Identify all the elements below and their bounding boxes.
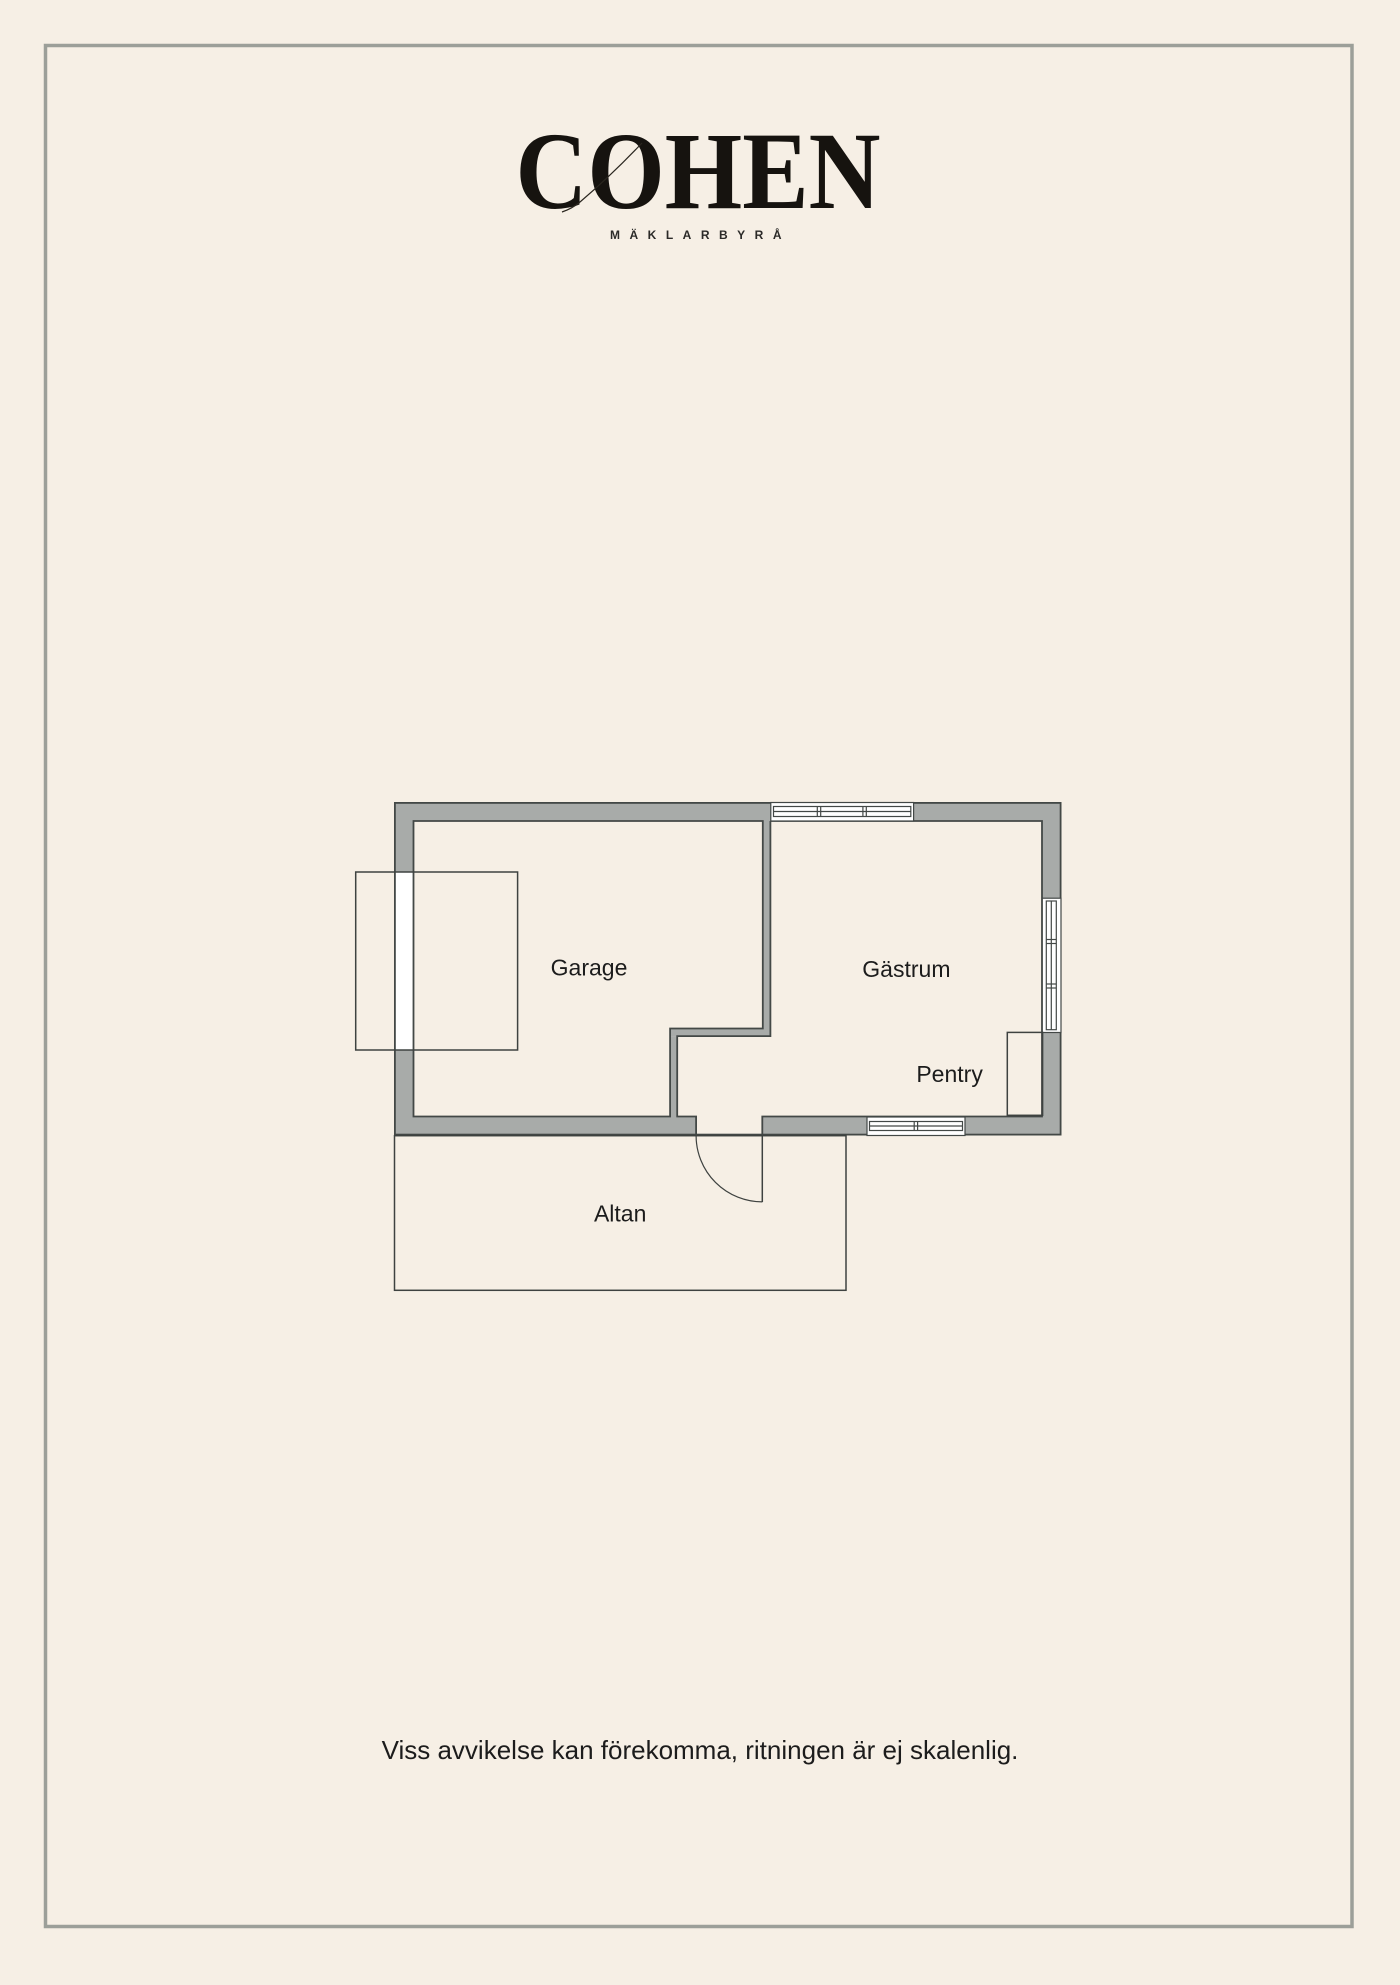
svg-text:Garage: Garage bbox=[551, 955, 628, 981]
svg-text:Altan: Altan bbox=[594, 1201, 646, 1227]
svg-text:MÄKLARBYRÅ: MÄKLARBYRÅ bbox=[610, 227, 791, 242]
svg-text:COHEN: COHEN bbox=[516, 110, 881, 232]
svg-text:Pentry: Pentry bbox=[916, 1061, 983, 1087]
svg-text:Viss avvikelse kan förekomma,: Viss avvikelse kan förekomma, ritningen … bbox=[382, 1735, 1019, 1765]
svg-text:Gästrum: Gästrum bbox=[862, 956, 950, 982]
